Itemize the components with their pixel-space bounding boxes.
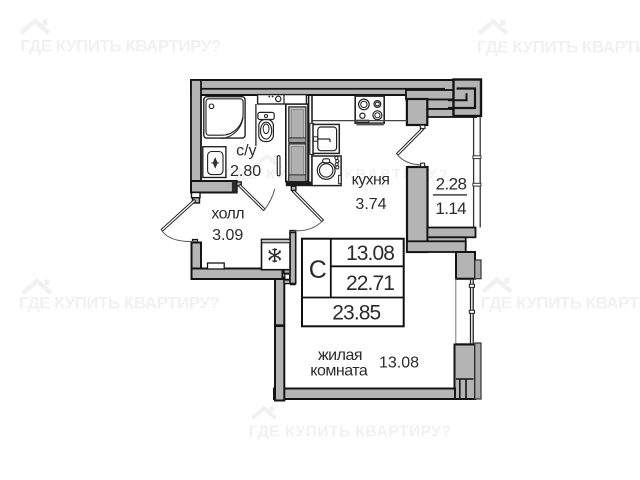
svg-text:13.08: 13.08 [346,242,394,265]
svg-text:22.71: 22.71 [346,272,394,295]
svg-text:холл: холл [211,206,244,223]
svg-text:3.09: 3.09 [212,227,243,244]
svg-text:1.14: 1.14 [435,199,466,218]
svg-text:ГДЕ КУПИТЬ КВАРТИРУ?: ГДЕ КУПИТЬ КВАРТИРУ? [477,37,640,56]
svg-text:кухня: кухня [352,171,390,188]
svg-text:2.28: 2.28 [436,175,467,194]
svg-text:ГДЕ КУПИТЬ КВАРТИРУ?: ГДЕ КУПИТЬ КВАРТИРУ? [19,293,220,312]
svg-text:комната: комната [310,362,368,379]
svg-text:С: С [309,256,327,284]
svg-text:ГДЕ КУПИТЬ КВАРТИРУ?: ГДЕ КУПИТЬ КВАРТИРУ? [249,423,452,440]
svg-text:2.80: 2.80 [230,163,261,180]
svg-text:23.85: 23.85 [332,302,380,325]
svg-text:с/у: с/у [236,143,256,160]
svg-text:13.08: 13.08 [379,355,419,372]
svg-text:3.74: 3.74 [355,196,386,213]
svg-text:ГДЕ КУПИТЬ КВАРТИРУ?: ГДЕ КУПИТЬ КВАРТИРУ? [481,293,640,312]
svg-text:ГДЕ КУПИТЬ КВАРТИРУ?: ГДЕ КУПИТЬ КВАРТИРУ? [20,37,221,56]
